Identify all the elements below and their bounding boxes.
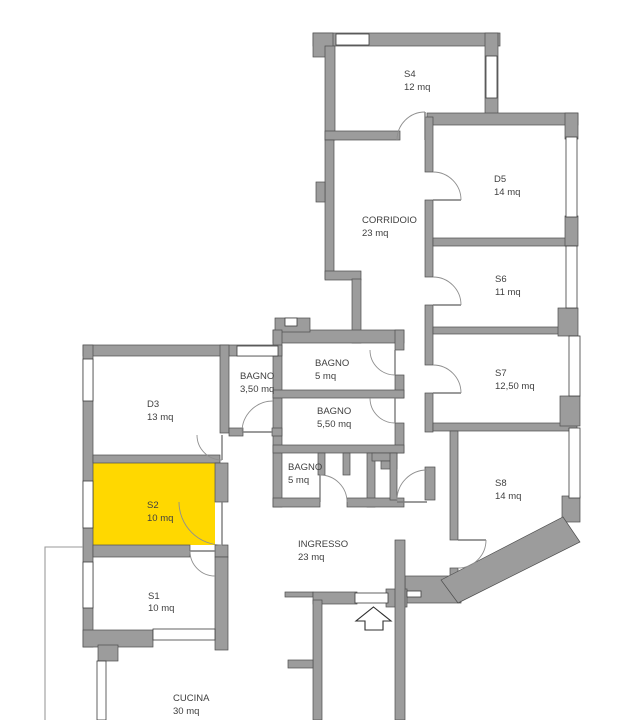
room-area-bagno-4: 5 mq bbox=[288, 475, 309, 486]
wall-segment bbox=[425, 393, 433, 432]
room-label-s6: S6 bbox=[495, 274, 507, 285]
room-label-bagno-4: BAGNO bbox=[288, 462, 322, 473]
room-area-s4: 12 mq bbox=[404, 82, 430, 93]
room-label-d3: D3 bbox=[147, 399, 159, 410]
room-label-d5: D5 bbox=[494, 174, 506, 185]
wall-segment bbox=[273, 390, 404, 398]
wall-segment bbox=[272, 428, 282, 436]
room-area-s7: 12,50 mq bbox=[495, 381, 535, 392]
door-swing-arc bbox=[370, 350, 395, 375]
room-area-ingresso: 23 mq bbox=[298, 552, 324, 563]
room-area-s8: 14 mq bbox=[495, 491, 521, 502]
window bbox=[336, 34, 369, 45]
wall-segment bbox=[558, 308, 578, 336]
wall-segment bbox=[93, 545, 190, 557]
wall-segment bbox=[441, 517, 580, 603]
room-label-s7: S7 bbox=[495, 368, 507, 379]
door-swing-arc bbox=[433, 277, 461, 305]
entrance-door-threshold bbox=[355, 593, 388, 603]
room-area-bagno-3: 5,50 mq bbox=[317, 419, 351, 430]
wall-segment bbox=[562, 496, 580, 522]
door-swing-arc bbox=[190, 551, 215, 576]
floor-plan: S4 12 mq CORRIDOIO 23 mq D5 14 mq S6 11 … bbox=[0, 0, 623, 720]
room-label-corridoio: CORRIDOIO bbox=[362, 215, 417, 226]
door-swing-arc bbox=[433, 172, 461, 200]
window bbox=[83, 481, 93, 528]
room-area-s2: 10 mq bbox=[147, 513, 173, 524]
wall-segment bbox=[273, 498, 320, 507]
window bbox=[569, 336, 580, 396]
room-label-cucina: CUCINA bbox=[173, 693, 210, 704]
wall-segment bbox=[215, 545, 228, 557]
wall-segment bbox=[215, 557, 228, 650]
room-label-s8: S8 bbox=[495, 478, 507, 489]
wall-segment bbox=[83, 630, 153, 647]
door-swing-arc bbox=[320, 475, 347, 502]
door-swing-arc bbox=[397, 112, 425, 140]
wall-segment bbox=[215, 463, 228, 502]
wall-segment bbox=[316, 182, 325, 202]
wall-segment bbox=[425, 117, 433, 172]
window bbox=[83, 562, 93, 608]
door-swing-arc bbox=[433, 365, 461, 393]
room-area-s1: 10 mq bbox=[148, 603, 174, 614]
window bbox=[566, 137, 577, 217]
room-area-d3: 13 mq bbox=[147, 412, 173, 423]
room-label-s1: S1 bbox=[148, 591, 160, 602]
wall-segment bbox=[565, 216, 578, 246]
wall-segment bbox=[395, 540, 405, 720]
wall-segment bbox=[433, 423, 577, 431]
wall-segment bbox=[285, 592, 313, 597]
wall-segment bbox=[565, 113, 578, 139]
door-swing-arc bbox=[370, 398, 395, 423]
door-swing-arc bbox=[397, 470, 427, 500]
wall-segment bbox=[229, 428, 243, 436]
window bbox=[566, 246, 577, 308]
room-area-s6: 11 mq bbox=[495, 287, 521, 298]
room-label-s4: S4 bbox=[404, 69, 416, 80]
room-area-d5: 14 mq bbox=[494, 187, 520, 198]
window bbox=[486, 56, 497, 98]
wall-segment bbox=[433, 327, 572, 334]
room-area-corridoio: 23 mq bbox=[362, 228, 388, 239]
window bbox=[97, 661, 106, 720]
wall-segment bbox=[325, 140, 334, 279]
wall-segment bbox=[98, 645, 118, 661]
wall-segment bbox=[425, 200, 433, 277]
wall-segment bbox=[325, 46, 335, 140]
room-area-bagno-2: 5 mq bbox=[315, 371, 336, 382]
wall-segment bbox=[390, 453, 397, 500]
window bbox=[407, 591, 421, 597]
wall-segment bbox=[425, 305, 433, 365]
wall-segment bbox=[273, 445, 404, 453]
room-area-cucina: 30 mq bbox=[173, 706, 199, 717]
window bbox=[285, 318, 297, 326]
window bbox=[83, 359, 93, 401]
room-label-bagno-2: BAGNO bbox=[315, 358, 349, 369]
wall-segment bbox=[273, 330, 282, 507]
balcony-outline bbox=[45, 547, 83, 720]
wall-segment bbox=[220, 345, 229, 433]
window bbox=[153, 629, 215, 640]
wall-segment bbox=[395, 330, 404, 350]
wall-segment bbox=[93, 455, 220, 463]
wall-segment bbox=[325, 131, 400, 140]
window bbox=[237, 346, 278, 356]
entrance-arrow-icon bbox=[356, 607, 391, 630]
wall-segment bbox=[288, 660, 313, 668]
wall-segment bbox=[425, 467, 435, 500]
wall-segment bbox=[313, 600, 322, 720]
door-swing-arc bbox=[242, 401, 273, 432]
wall-segment bbox=[343, 453, 350, 475]
room-label-s2: S2 bbox=[147, 500, 159, 511]
room-label-bagno-3: BAGNO bbox=[317, 406, 351, 417]
window bbox=[569, 428, 580, 498]
room-label-ingresso: INGRESSO bbox=[298, 539, 348, 550]
room-label-bagno-1: BAGNO bbox=[240, 371, 274, 382]
room-area-bagno-1: 3,50 mq bbox=[240, 384, 274, 395]
wall-segment bbox=[427, 113, 578, 125]
wall-segment bbox=[450, 431, 458, 540]
wall-segment bbox=[325, 271, 361, 280]
wall-segment bbox=[560, 396, 580, 426]
wall-segment bbox=[433, 238, 568, 246]
